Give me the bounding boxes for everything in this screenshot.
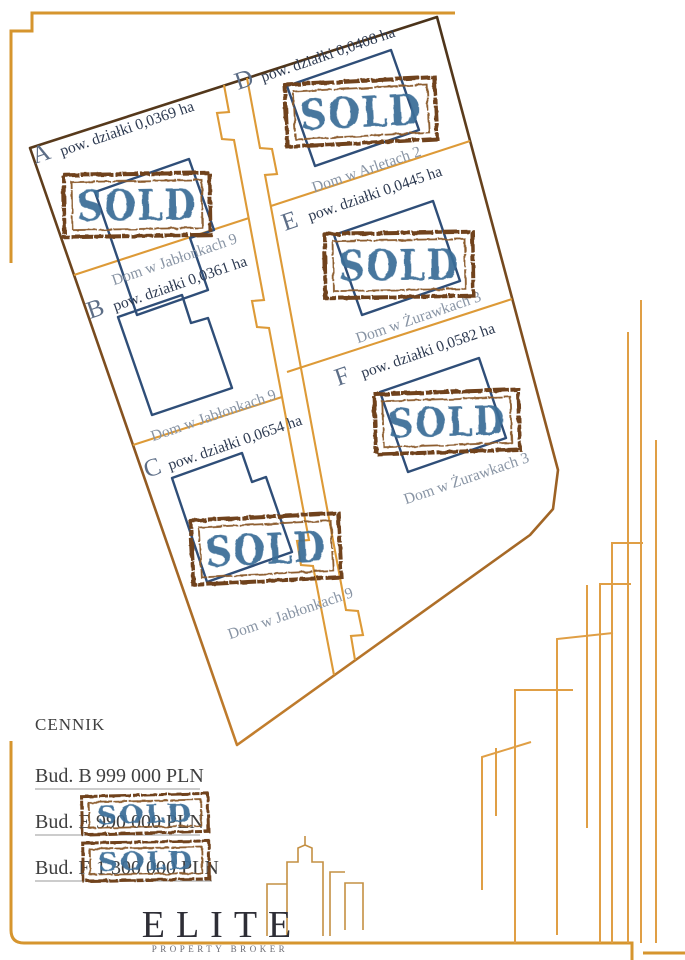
sold-stamp-plot-a: SOLD bbox=[63, 173, 210, 238]
sold-stamp-plot-f: SOLD bbox=[374, 390, 520, 455]
estate-plan-canvas: A B C D E F pow. działki 0,0369 ha pow. … bbox=[0, 0, 685, 960]
stamp-text: SOLD bbox=[299, 85, 423, 140]
logo-wordmark: ELITE bbox=[142, 904, 303, 946]
skyline-building bbox=[557, 633, 613, 935]
stamp-text: SOLD bbox=[338, 240, 460, 291]
address-plot-c: Dom w Jabłonkach 9 bbox=[226, 584, 356, 643]
estate-plan: A B C D E F pow. działki 0,0369 ha pow. … bbox=[28, 17, 558, 745]
price-list-title: CENNIK bbox=[35, 715, 105, 734]
price-row-label: Bud. B bbox=[35, 765, 92, 787]
price-list: CENNIK Bud. B 999 000 PLN Bud. E 990 000… bbox=[35, 715, 219, 881]
area-label-plot-a: pow. działki 0,0369 ha bbox=[58, 98, 197, 160]
skyline-building bbox=[482, 742, 531, 890]
stamp-text: SOLD bbox=[97, 799, 194, 831]
plot-letter-a: A bbox=[28, 138, 54, 169]
logo-building bbox=[330, 872, 345, 936]
sold-stamp-price-f: SOLD bbox=[83, 841, 210, 881]
address-plot-f: Dom w Żurawkach 3 bbox=[402, 449, 532, 508]
plot-letter-b: B bbox=[83, 294, 108, 325]
stamp-text: SOLD bbox=[204, 522, 327, 577]
plot-letter-e: E bbox=[278, 206, 301, 237]
stamp-text: SOLD bbox=[77, 180, 198, 231]
stamp-text: SOLD bbox=[98, 846, 194, 877]
plot-letter-d: D bbox=[231, 64, 257, 95]
sold-stamp-plot-e: SOLD bbox=[324, 232, 473, 299]
stamp-text: SOLD bbox=[387, 397, 507, 448]
sold-stamp-plot-c: SOLD bbox=[190, 513, 341, 585]
price-row-label: Bud. F bbox=[35, 857, 89, 879]
skyline-building bbox=[600, 584, 631, 943]
sold-stamp-plot-d: SOLD bbox=[284, 77, 437, 147]
plot-letter-f: F bbox=[331, 362, 353, 392]
logo-building bbox=[345, 883, 363, 930]
skyline-building bbox=[515, 690, 573, 943]
price-row-value: 999 000 PLN bbox=[96, 765, 204, 787]
logo-tagline: PROPERTY BROKER bbox=[152, 944, 288, 954]
